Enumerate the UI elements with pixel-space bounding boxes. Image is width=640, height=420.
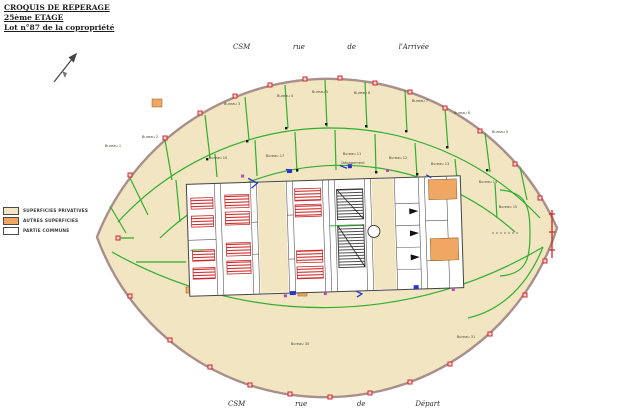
floor-label: 25ème ETAGE — [4, 13, 174, 23]
street-word: de — [347, 43, 356, 51]
legend-item-common: PARTIE COMMUNE — [3, 226, 88, 236]
survey-marker — [328, 395, 332, 399]
survey-marker — [116, 236, 120, 240]
legend-label: PARTIE COMMUNE — [23, 229, 69, 234]
legend-swatch-common — [3, 227, 19, 235]
survey-marker — [168, 338, 172, 342]
legend-item-other: AUTRES SUPERFICIES — [3, 216, 88, 226]
survey-marker — [408, 380, 412, 384]
lobby-circle — [368, 225, 380, 237]
street-word: de — [357, 400, 366, 408]
survey-marker — [128, 294, 132, 298]
survey-marker — [538, 196, 542, 200]
survey-marker — [338, 76, 342, 80]
survey-marker — [443, 106, 447, 110]
survey-marker — [448, 362, 452, 366]
legend-label: SUPERFICIES PRIVATIVES — [23, 209, 88, 214]
survey-marker — [208, 365, 212, 369]
survey-marker — [163, 136, 167, 140]
floor-plan-drawing — [0, 0, 640, 420]
legend-item-private: SUPERFICIES PRIVATIVES — [3, 206, 88, 216]
legend-swatch-private — [3, 207, 19, 215]
street-word: CSM — [228, 400, 245, 408]
survey-marker — [373, 81, 377, 85]
legend: SUPERFICIES PRIVATIVES AUTRES SUPERFICIE… — [3, 206, 88, 236]
survey-marker — [513, 162, 517, 166]
title-block: CROQUIS DE REPERAGE 25ème ETAGE Lot n°87… — [4, 3, 174, 33]
street-word: l'Arrivée — [399, 43, 429, 51]
street-label-bottom: CSM rue de Départ — [228, 400, 440, 408]
survey-marker — [478, 129, 482, 133]
survey-marker — [368, 391, 372, 395]
survey-marker — [523, 293, 527, 297]
floor-plan-page: CROQUIS DE REPERAGE 25ème ETAGE Lot n°87… — [0, 0, 640, 420]
street-word: Départ — [415, 400, 440, 408]
lot-label: Lot n°87 de la copropriété — [4, 23, 174, 33]
stairwell — [337, 189, 365, 268]
street-word: CSM — [233, 43, 250, 51]
survey-marker — [488, 332, 492, 336]
survey-marker — [408, 90, 412, 94]
legend-label: AUTRES SUPERFICIES — [23, 219, 78, 224]
drawing-title: CROQUIS DE REPERAGE — [4, 3, 174, 13]
survey-marker — [268, 83, 272, 87]
north-arrow-icon — [54, 54, 76, 82]
survey-marker — [303, 77, 307, 81]
street-word: rue — [293, 43, 305, 51]
survey-marker — [288, 392, 292, 396]
legend-swatch-other — [3, 217, 19, 225]
survey-marker — [248, 383, 252, 387]
street-word: rue — [295, 400, 307, 408]
street-label-top: CSM rue de l'Arrivée — [233, 43, 429, 51]
survey-marker — [128, 173, 132, 177]
survey-marker — [198, 111, 202, 115]
survey-marker — [543, 259, 547, 263]
survey-marker — [233, 94, 237, 98]
